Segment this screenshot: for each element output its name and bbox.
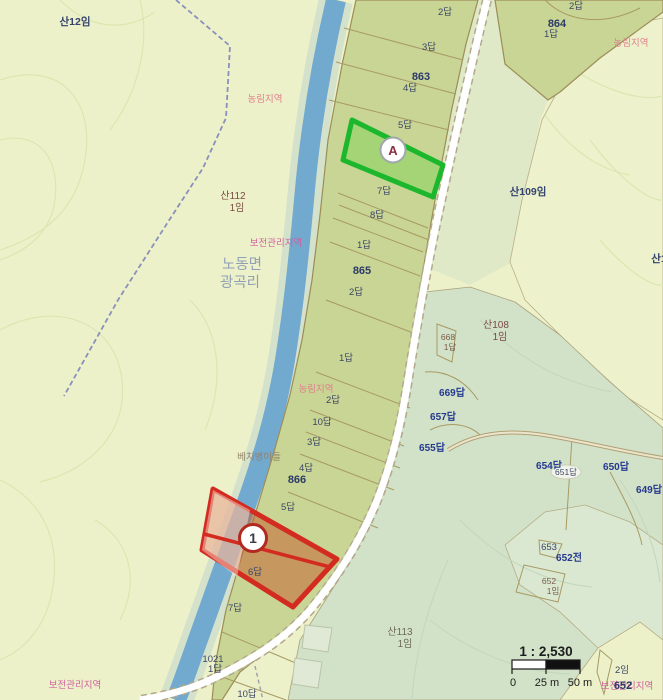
map-label: 6답: [248, 566, 262, 578]
cadastral-map-viewport[interactable]: 2답3답8634답5답7답8답1답8652답1답농림지역2답10답3답4답866…: [0, 0, 663, 700]
map-label: 1임: [547, 586, 560, 596]
map-label: 노동면: [222, 256, 262, 273]
map-label: 2임: [615, 664, 629, 676]
map-label: 산1: [651, 252, 663, 265]
map-label: 농림지역: [299, 383, 334, 395]
marker-1-number: 1: [249, 530, 257, 546]
map-label: 1답: [444, 342, 457, 352]
map-label: 1답: [339, 352, 353, 364]
map-label: 광곡리: [220, 274, 260, 291]
cadastral-map[interactable]: 2답3답8634답5답7답8답1답8652답1답농림지역2답10답3답4답866…: [0, 0, 663, 700]
map-label: 866: [288, 474, 306, 486]
map-label: 농림지역: [614, 37, 649, 49]
map-label: 2답: [569, 0, 583, 12]
map-label: 산12임: [60, 15, 91, 28]
map-label: 산108: [483, 319, 509, 331]
map-label: 산112: [220, 190, 246, 202]
map-label: 652: [542, 576, 556, 586]
map-label: 668: [441, 332, 455, 342]
map-label: 7답: [377, 185, 391, 197]
map-label: 2답: [438, 6, 452, 18]
map-label: 3답: [307, 436, 321, 448]
map-label: 863: [412, 71, 430, 83]
map-label: 5답: [398, 119, 412, 131]
map-label: 농림지역: [248, 93, 283, 105]
scale-tick-25: 25 m: [535, 677, 559, 689]
map-label: 649답: [636, 484, 663, 496]
scale-segment-black: [546, 660, 580, 669]
map-label: 7답: [228, 602, 242, 614]
map-label: 655답: [419, 442, 446, 454]
map-label: 652: [614, 680, 632, 692]
scale-ratio: 1 : 2,530: [519, 644, 572, 659]
map-label: 4답: [403, 82, 417, 94]
map-label: 산113: [387, 626, 413, 638]
marker-a[interactable]: A: [381, 138, 406, 163]
map-label: 650답: [603, 461, 630, 473]
map-label: 보전관리지역: [250, 238, 302, 249]
map-label: 1답: [544, 28, 558, 40]
map-label: 657답: [430, 411, 457, 423]
map-label: 2답: [326, 394, 340, 406]
map-label: 10답: [237, 688, 257, 700]
scale-tick-50: 50 m: [568, 677, 592, 689]
scale-segment-white: [512, 660, 546, 669]
map-label: 베치병이들: [237, 451, 281, 463]
scale-tick-0: 0: [510, 677, 516, 689]
map-label: 669답: [439, 387, 466, 399]
marker-a-letter: A: [388, 143, 398, 158]
map-label: 651답: [555, 467, 577, 477]
map-label: 1답: [357, 239, 371, 251]
map-label: 보전관리지역: [49, 680, 101, 691]
map-label: 653: [541, 542, 557, 553]
map-label: 1답: [208, 663, 222, 675]
map-label: 4답: [299, 462, 313, 474]
map-label: 1임: [230, 201, 245, 214]
map-label: 3답: [422, 41, 436, 53]
marker-1[interactable]: 1: [240, 525, 267, 552]
map-label: 1임: [493, 330, 508, 343]
map-label: 1임: [398, 637, 413, 650]
map-label: 산109임: [510, 185, 547, 198]
map-label: 8답: [370, 209, 384, 221]
map-label: 2답: [349, 286, 363, 298]
map-label: 865: [353, 265, 371, 277]
map-label: 5답: [281, 501, 295, 513]
map-label: 10답: [312, 416, 332, 428]
map-label: 652전: [556, 551, 582, 564]
